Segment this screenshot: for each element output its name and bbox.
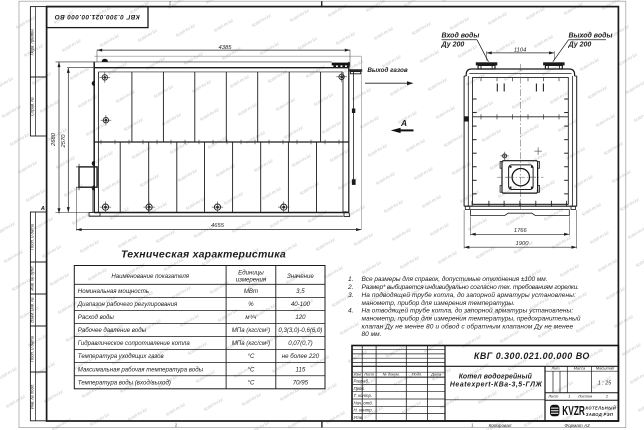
svg-text:4385: 4385 xyxy=(219,45,233,51)
svg-text:40-100: 40-100 xyxy=(291,301,311,308)
svg-text:1.: 1. xyxy=(348,276,354,283)
svg-text:Расход воды: Расход воды xyxy=(78,314,115,321)
svg-text:Справ. №: Справ. № xyxy=(30,97,35,116)
svg-text:Ду 200: Ду 200 xyxy=(568,42,592,49)
svg-text:Размер* выбирается индивидуаль: Размер* выбирается индивидуально согласн… xyxy=(362,283,580,291)
svg-text:120: 120 xyxy=(295,314,306,321)
svg-text:Пров.: Пров. xyxy=(354,386,365,391)
svg-text:Техническая характеристика: Техническая характеристика xyxy=(121,249,286,261)
svg-text:Выход газов: Выход газов xyxy=(367,66,408,74)
svg-text:Н. контр.: Н. контр. xyxy=(354,408,373,413)
svg-text:Наименование показателя: Наименование показателя xyxy=(111,273,189,280)
svg-text:Диапазон рабочего регулировани: Диапазон рабочего регулирования xyxy=(77,301,178,308)
svg-text:2.: 2. xyxy=(347,284,354,291)
svg-text:Единицы: Единицы xyxy=(238,269,264,276)
svg-text:Выход воды: Выход воды xyxy=(569,32,613,40)
svg-text:Подп. и дата: Подп. и дата xyxy=(30,223,35,249)
svg-text:На отводящей трубе котла, до з: На отводящей трубе котла, до запорной ар… xyxy=(362,307,574,315)
svg-text:Изм: Изм xyxy=(354,372,362,377)
svg-text:1 : 25: 1 : 25 xyxy=(598,381,612,387)
svg-text:МВт: МВт xyxy=(244,288,258,295)
svg-text:1: 1 xyxy=(568,393,570,398)
svg-text:Температура уходящих газов: Температура уходящих газов xyxy=(78,353,164,360)
svg-text:измерения: измерения xyxy=(236,277,267,284)
svg-text:манометр, прибор для измерения: манометр, прибор для измерения температу… xyxy=(362,314,581,322)
svg-text:Лист: Лист xyxy=(363,372,375,377)
svg-text:Рабочее давление воды: Рабочее давление воды xyxy=(78,327,147,334)
svg-text:0,07(0,7): 0,07(0,7) xyxy=(288,340,312,347)
svg-text:На подводящей трубе котла, до: На подводящей трубе котла, до запорной а… xyxy=(362,291,576,299)
svg-text:Температура воды (вход/выход): Температура воды (вход/выход) xyxy=(78,379,171,386)
svg-text:4.: 4. xyxy=(348,308,354,315)
svg-text:°С: °С xyxy=(248,366,255,373)
svg-text:115: 115 xyxy=(296,366,306,373)
svg-text:Т. контр.: Т. контр. xyxy=(354,393,373,398)
svg-text:Лит.: Лит. xyxy=(550,366,560,371)
svg-text:3,5: 3,5 xyxy=(296,288,305,295)
svg-text:80 мм.: 80 мм. xyxy=(362,331,382,338)
svg-text:Разраб.: Разраб. xyxy=(354,379,370,384)
svg-text:KVZR: KVZR xyxy=(562,403,585,418)
svg-text:Инв. № подл.: Инв. № подл. xyxy=(30,384,35,409)
svg-text:70/95: 70/95 xyxy=(293,379,309,386)
svg-text:КОТЕЛЬНЫЙ: КОТЕЛЬНЫЙ xyxy=(586,406,617,411)
svg-text:Формат А3: Формат А3 xyxy=(564,423,590,428)
svg-text:Все размеры для справок, допус: Все размеры для справок, допустимые откл… xyxy=(362,275,548,283)
svg-text:Значение: Значение xyxy=(287,273,314,280)
svg-text:Утв.: Утв. xyxy=(354,415,364,420)
svg-text:%: % xyxy=(248,301,254,308)
svg-text:№ докум.: № докум. xyxy=(383,372,400,377)
svg-text:3.: 3. xyxy=(348,292,354,299)
svg-text:манометр, прибор для измерения: манометр, прибор для измерения температу… xyxy=(362,299,516,307)
svg-text:1104: 1104 xyxy=(514,48,526,54)
svg-text:2680: 2680 xyxy=(51,132,57,147)
svg-text:м³/ч: м³/ч xyxy=(245,314,257,321)
svg-text:°С: °С xyxy=(248,379,255,386)
svg-text:КВГ 0.300.021.00.000 ВО: КВГ 0.300.021.00.000 ВО xyxy=(55,13,140,20)
svg-text:А: А xyxy=(40,206,45,212)
svg-text:ЗАВОД РЭП: ЗАВОД РЭП xyxy=(586,412,614,417)
svg-text:Подп.: Подп. xyxy=(412,372,422,377)
svg-text:Лист: Лист xyxy=(547,393,559,398)
svg-text:не более 220: не более 220 xyxy=(282,353,320,360)
svg-text:Взам. инв. №: Взам. инв. № xyxy=(30,297,35,323)
svg-text:МПа (кгс/см²): МПа (кгс/см²) xyxy=(232,327,270,334)
svg-text:Максимальная рабочая температу: Максимальная рабочая температура воды xyxy=(78,366,204,373)
svg-text:1900: 1900 xyxy=(516,241,530,247)
svg-text:Котел водогрейный: Котел водогрейный xyxy=(459,373,533,381)
svg-text:КВГ 0.300.021.00.000 ВО: КВГ 0.300.021.00.000 ВО xyxy=(474,351,589,361)
svg-text:А: А xyxy=(400,118,407,128)
svg-text:Heatexpert-КВа-3,5-ГЛЖ: Heatexpert-КВа-3,5-ГЛЖ xyxy=(450,381,543,388)
svg-text:4655: 4655 xyxy=(211,223,225,229)
svg-text:Подп. и дата: Подп. и дата xyxy=(30,335,35,361)
svg-text:Масса: Масса xyxy=(574,366,586,371)
svg-text:Дата: Дата xyxy=(430,372,442,377)
svg-text:МПа (кгс/см²): МПа (кгс/см²) xyxy=(232,340,270,347)
svg-text:1766: 1766 xyxy=(514,228,528,234)
svg-text:2570: 2570 xyxy=(61,134,67,149)
svg-text:°С: °С xyxy=(248,353,255,360)
svg-text:Номинальная мощность: Номинальная мощность xyxy=(78,288,149,295)
svg-text:Гидравлическое сопротивление к: Гидравлическое сопротивление котла xyxy=(78,340,191,347)
svg-text:Листов: Листов xyxy=(577,393,592,398)
svg-text:Нач. отд.: Нач. отд. xyxy=(354,400,373,405)
svg-text:Инв. № дубл.: Инв. № дубл. xyxy=(30,265,35,290)
svg-text:Перв. примен.: Перв. примен. xyxy=(30,28,35,55)
svg-text:Ду 200: Ду 200 xyxy=(441,42,465,49)
svg-text:Копировал: Копировал xyxy=(489,423,512,428)
svg-text:Вход воды: Вход воды xyxy=(442,32,480,40)
svg-text:Масштаб: Масштаб xyxy=(596,366,615,371)
svg-text:клапан Ду не менее 80 и обвод: клапан Ду не менее 80 и обвод с обратным… xyxy=(362,322,574,330)
svg-text:0,3(3,0)-0,6(6,0): 0,3(3,0)-0,6(6,0) xyxy=(278,327,322,334)
